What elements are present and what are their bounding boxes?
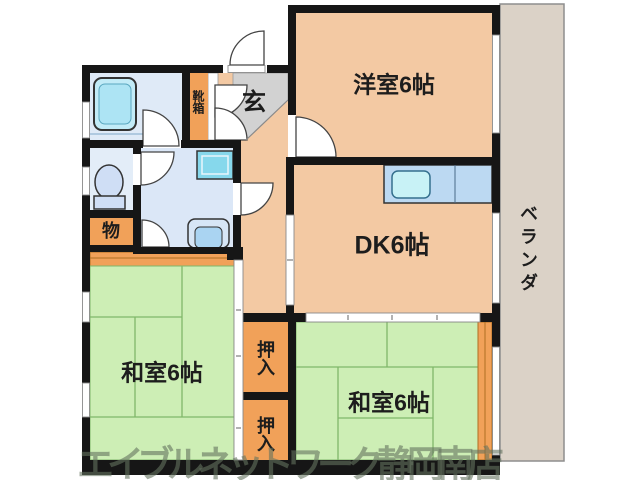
japanese-left-closet-sliding-doors [234,260,243,460]
storage-label: 物 [102,222,120,240]
kitchen-sink-icon [392,171,430,198]
toilet-icon [94,165,125,209]
shoebox-label: 靴箱 [192,90,204,114]
dk-japanese-right-sliding-door [306,313,480,322]
entrance-label: 玄 [242,91,266,115]
watermark-text: エイブルネットワーク静岡南店 [77,434,497,480]
japanese-room-left-label: 和室6帖 [121,362,203,385]
entrance-door-opening [228,66,265,73]
dk-veranda-window [493,213,500,303]
floorplan-canvas [0,0,640,480]
hallway-floor [241,140,288,313]
japanese-left-window-lower [83,383,90,417]
bathroom-window [83,102,90,138]
bathtub-icon [90,78,143,134]
japanese-room-left-floor [90,252,234,460]
japanese-left-window-upper [83,292,90,322]
washing-machine-icon [188,219,229,248]
washbasin-icon [197,151,233,179]
dk-label: DK6帖 [354,234,429,259]
japanese-room-right-label: 和室6帖 [348,392,430,415]
floorplan-page: 洋室6帖 DK6帖 和室6帖 和室6帖 押入 押入 物 玄 靴箱 ベランダ エイ… [0,0,640,480]
toilet-window [83,167,90,195]
western-room-label: 洋室6帖 [353,74,435,97]
western-room-veranda-window [493,35,500,133]
entrance-door-arc [230,31,264,65]
kitchen-counter-icon [384,165,492,203]
veranda-label: ベランダ [519,204,537,296]
closet-upper-label: 押入 [256,340,274,376]
